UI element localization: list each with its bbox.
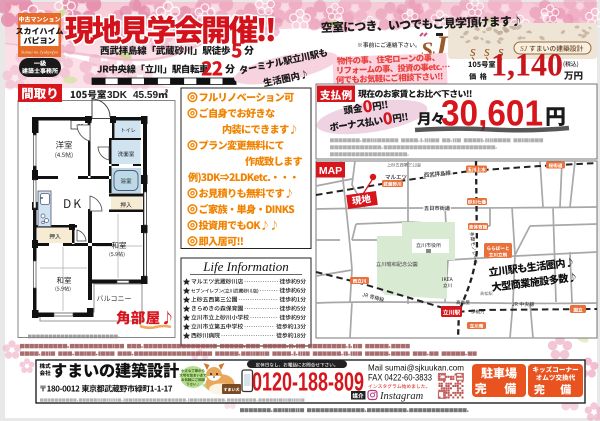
svg-text:Mail sumai@sjkuukan.com: Mail sumai@sjkuukan.com (368, 363, 464, 373)
svg-text:Instagram: Instagram (379, 391, 424, 402)
svg-text:Life Information: Life Information (202, 259, 289, 274)
svg-text:1,140: 1,140 (491, 48, 563, 84)
svg-text:FAX 0422-60-3833: FAX 0422-60-3833 (368, 373, 432, 383)
svg-text:3DK: 3DK (107, 90, 128, 101)
svg-text:0120-188-809: 0120-188-809 (252, 367, 364, 397)
svg-text:45.59: 45.59 (133, 90, 158, 101)
svg-text:Sumai no Jyukyofyo: Sumai no Jyukyofyo (21, 50, 58, 55)
svg-text:MAP: MAP (319, 165, 342, 177)
